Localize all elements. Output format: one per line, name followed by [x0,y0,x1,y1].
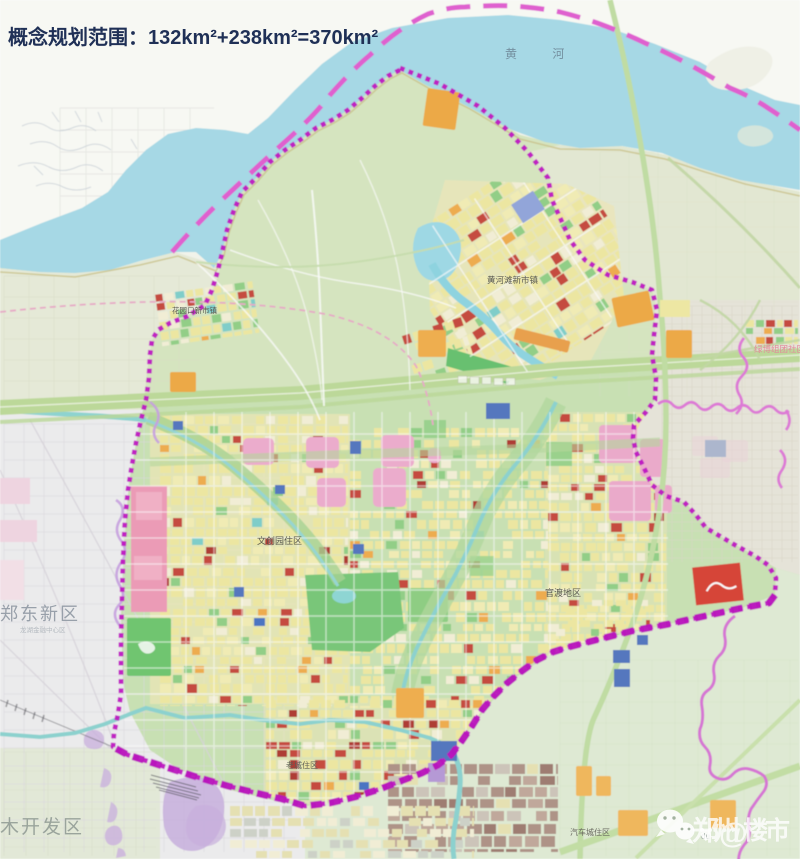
svg-text:老城住区: 老城住区 [286,760,318,770]
svg-text:官渡地区: 官渡地区 [545,587,581,598]
svg-text:市: 市 [765,816,790,845]
svg-text:汽车城住区: 汽车城住区 [570,827,610,837]
svg-text:花园口新市镇: 花园口新市镇 [172,305,217,315]
svg-text:黄 河: 黄 河 [505,47,580,61]
svg-text:龙湖金融中心区: 龙湖金融中心区 [20,625,66,634]
svg-text:文创园住区: 文创园住区 [257,535,302,546]
svg-text:绿博组团社区: 绿博组团社区 [754,344,800,354]
svg-text:概念规划范围：132km²+238km²=370km²: 概念规划范围：132km²+238km²=370km² [8,25,379,49]
svg-text:木开发区: 木开发区 [0,816,84,838]
svg-text:黄河滩新市镇: 黄河滩新市镇 [487,275,539,285]
svg-text:郑东新区: 郑东新区 [0,604,80,624]
